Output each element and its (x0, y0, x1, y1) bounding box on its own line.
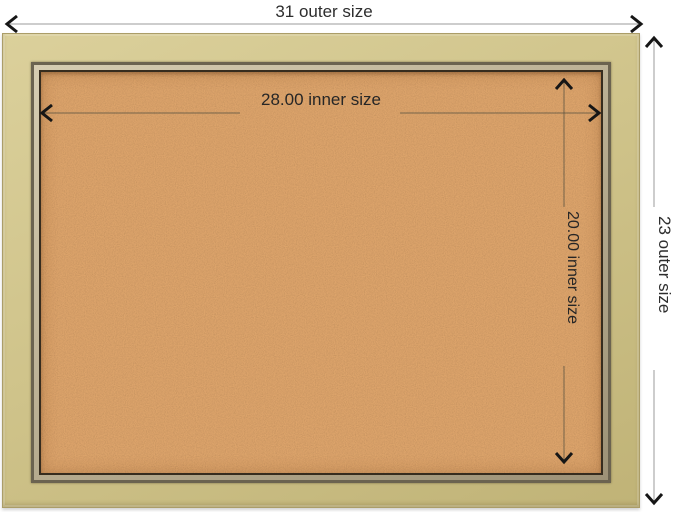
cork-board-surface (41, 72, 601, 473)
inner-height-label: 20.00 inner size (561, 211, 583, 363)
frame-inner-strip (34, 65, 608, 480)
inner-width-label: 28.00 inner size (41, 89, 601, 110)
product-dimension-image: 31 outer size 28.00 inner size 23 outer … (0, 0, 679, 512)
cork-texture (41, 72, 601, 473)
frame-inner-dark-edge (39, 70, 603, 475)
outer-width-label: 31 outer size (0, 1, 648, 22)
outer-height-label: 23 outer size (653, 216, 675, 366)
frame-lip-band (31, 62, 611, 483)
arrowhead-down-icon (646, 494, 662, 503)
arrowhead-up-icon (646, 38, 662, 47)
